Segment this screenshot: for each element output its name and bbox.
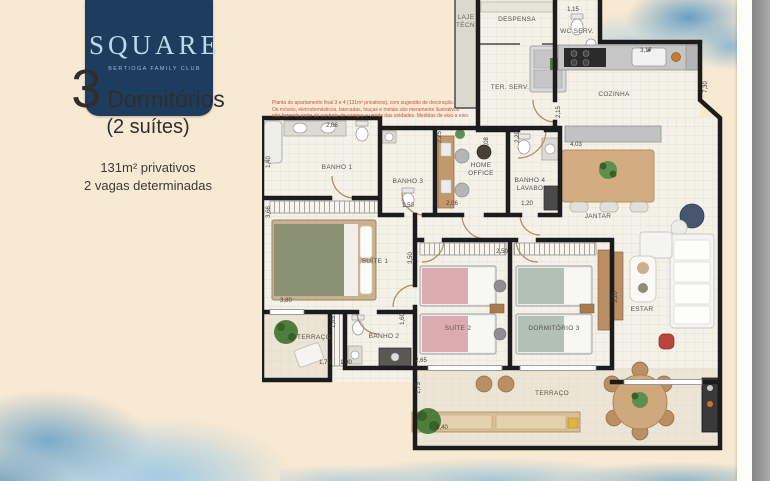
room-label-jantar: JANTAR xyxy=(585,213,612,221)
dim-dormitorio3-height: 3,20 xyxy=(613,291,619,303)
dim-lavabo-width: 1,20 xyxy=(521,201,533,207)
room-label-banho-3: BANHO 3 xyxy=(393,178,424,186)
dim-banho2-height: 1,60 xyxy=(400,313,406,325)
dim-terraco-pequeno-width: 1,70 xyxy=(319,360,331,366)
room-label-dormitorio-3: DORMITÓRIO 3 xyxy=(528,325,579,333)
page-edge-gray xyxy=(752,0,770,481)
dim-suite2-bottom: 2,65 xyxy=(415,358,427,364)
bedroom-count: 3 xyxy=(71,62,101,116)
bedroom-label: Dormitórios xyxy=(107,86,225,113)
room-label-wc-serv: WC SERV. xyxy=(560,28,594,36)
dim-home-office-width: 2,06 xyxy=(446,201,458,207)
suites-label: (2 suítes) xyxy=(28,116,268,139)
brand-name: SQUARE xyxy=(85,30,213,61)
room-label-ter-serv: TER. SERV. xyxy=(491,84,529,92)
room-label-cozinha: COZINHA xyxy=(598,91,629,99)
dim-right-wall: 7,30 xyxy=(703,81,709,93)
floor-plan-drawing xyxy=(262,0,735,458)
room-label-suite-1: SUÍTE 1 xyxy=(362,258,389,266)
room-label-despensa: DESPENSA xyxy=(498,16,536,24)
unit-info: 3 Dormitórios (2 suítes) 131m² privativo… xyxy=(28,62,268,194)
room-label-terraco-grande: TERRAÇO xyxy=(535,390,569,398)
unit-headline: 3 Dormitórios xyxy=(28,62,268,116)
disclaimer-line-2: Os móveis, eletrodomésticos, bancadas, l… xyxy=(272,107,459,113)
floor-plan: Planta do apartamento final 3 e 4 (131m²… xyxy=(262,0,735,458)
dim-cozinha-width: 3,17 xyxy=(640,48,652,54)
dim-suite1-depth: 3,66 xyxy=(266,206,272,218)
dim-terraco-width: 8,40 xyxy=(436,425,448,431)
dim-banho4-height: 2,29 xyxy=(515,131,521,143)
dim-suite2-width: 2,50 xyxy=(496,249,508,255)
dim-jantar-width: 4,03 xyxy=(570,142,582,148)
room-label-terraco-pequeno: TERRAÇO xyxy=(297,334,331,342)
dim-wc-serv-width: 1,15 xyxy=(567,7,579,13)
brochure-page: SQUARE BERTIOGA FAMILY CLUB 3 Dormitório… xyxy=(0,0,770,481)
plan-disclaimer: Planta do apartamento final 3 e 4 (131m²… xyxy=(272,100,477,120)
room-label-laje-tecnica: LAJE TÉCN. xyxy=(456,14,476,30)
room-label-suite-2: SUÍTE 2 xyxy=(445,325,472,333)
room-label-banho-2: BANHO 2 xyxy=(369,333,400,341)
room-label-estar: ESTAR xyxy=(631,306,654,314)
dim-banho1-depth: 1,40 xyxy=(266,156,272,168)
disclaimer-line-1: Planta do apartamento final 3 e 4 (131m²… xyxy=(272,100,454,106)
area-label: 131m² privativos xyxy=(28,159,268,177)
dim-terraco-depth: 1,75 xyxy=(416,382,422,394)
dim-banho3-width: 1,50 xyxy=(402,203,414,209)
disclaimer-line-3: não fazendo parte do contrato de compra … xyxy=(272,113,469,119)
room-label-banho-1: BANHO 1 xyxy=(322,164,353,172)
dim-suite2-height: 3,50 xyxy=(408,252,414,264)
dim-terraco-pequeno-height: 1,65 xyxy=(331,316,337,328)
parking-label: 2 vagas determinadas xyxy=(28,177,268,195)
room-label-home-office: HOME OFFICE xyxy=(463,162,499,178)
dim-cozinha-left: 2,15 xyxy=(556,106,562,118)
dim-banho1-width: 2,06 xyxy=(326,123,338,129)
page-edge-white xyxy=(737,0,752,481)
room-label-banho-4-lavabo: BANHO 4 LAVABO xyxy=(514,177,546,193)
dim-banho2-width: 1,90 xyxy=(340,360,352,366)
dim-suite1-width: 3,80 xyxy=(280,298,292,304)
dim-banho3-height: 2,25 xyxy=(437,131,443,143)
dim-ter-serv-height: 4,08 xyxy=(484,137,490,149)
